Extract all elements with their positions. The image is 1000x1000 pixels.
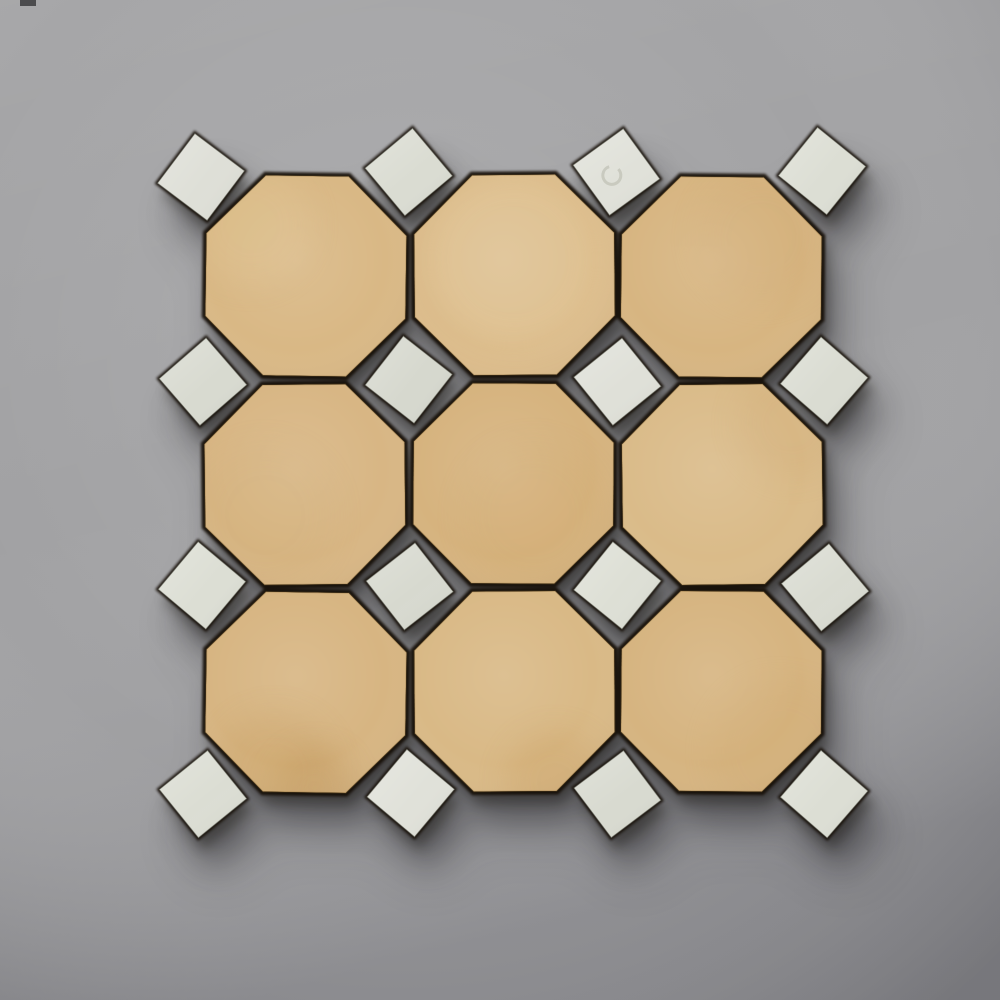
photo-artifact-mark	[20, 0, 36, 6]
octagon-tile-r0c1	[414, 174, 616, 376]
octagon-tile-r1c1	[413, 383, 614, 584]
screenshot-root	[0, 0, 1000, 1000]
product-photo	[0, 0, 1000, 1000]
tile-panel	[151, 122, 872, 844]
